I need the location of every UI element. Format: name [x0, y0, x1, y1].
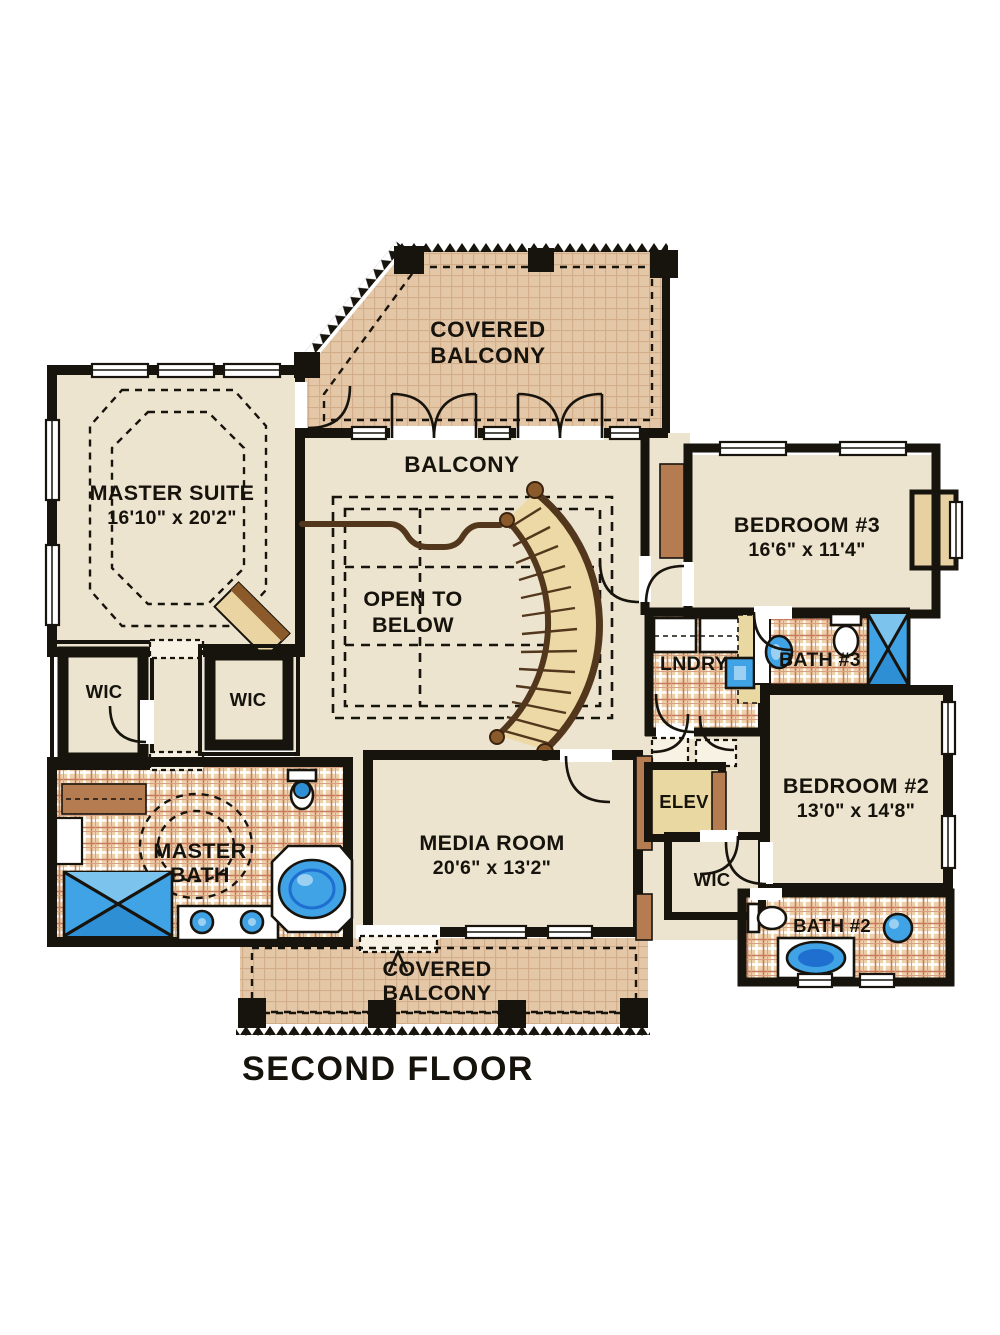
bath2-sink: [884, 914, 912, 942]
bath3-shower: [868, 614, 908, 684]
master-toilet: [288, 770, 316, 809]
master-tub: [272, 846, 352, 932]
laundry-label: LNDRY: [660, 653, 728, 675]
master-bath-label-2: BATH: [170, 863, 230, 887]
wic-left-b-label: WIC: [230, 689, 267, 710]
elevator-label: ELEV: [659, 791, 709, 812]
media-room-name: MEDIA ROOM: [419, 831, 564, 855]
media-room-dims: 20'6" x 13'2": [433, 857, 551, 879]
master-bath-label-1: MASTER: [153, 839, 246, 863]
covered-balcony-top-label-1: COVERED: [430, 317, 545, 342]
covered-balcony-bottom-label-2: BALCONY: [382, 981, 491, 1005]
bath2-toilet: [748, 904, 786, 932]
master-vanity-sinks: [178, 906, 278, 940]
bath3-label: BATH #3: [779, 649, 861, 671]
bedroom3-dims: 16'6" x 11'4": [748, 539, 865, 561]
floor-plan-drawing: COVERED BALCONY MASTER SUITE 16'10" x 20…: [0, 0, 1000, 1335]
bath2-label: BATH #2: [793, 915, 871, 936]
bedroom2-name: BEDROOM #2: [783, 774, 929, 798]
floor-plan-page: COVERED BALCONY MASTER SUITE 16'10" x 20…: [0, 0, 1000, 1335]
covered-balcony-top-label-2: BALCONY: [430, 343, 545, 368]
open-to-below-label-2: BELOW: [372, 613, 454, 637]
covered-balcony-bottom-label-1: COVERED: [382, 957, 491, 981]
bedroom2-dims: 13'0" x 14'8": [797, 800, 915, 822]
floor-title: SECOND FLOOR: [242, 1050, 534, 1088]
balcony-label: BALCONY: [404, 452, 519, 477]
master-shower: [64, 872, 172, 936]
bedroom3-name: BEDROOM #3: [734, 513, 880, 537]
bath2-tub: [778, 938, 854, 978]
open-to-below-label-1: OPEN TO: [363, 587, 462, 611]
wic-left-a-label: WIC: [86, 681, 123, 702]
master-suite-name: MASTER SUITE: [90, 481, 255, 505]
master-suite-dims: 16'10" x 20'2": [107, 507, 237, 529]
